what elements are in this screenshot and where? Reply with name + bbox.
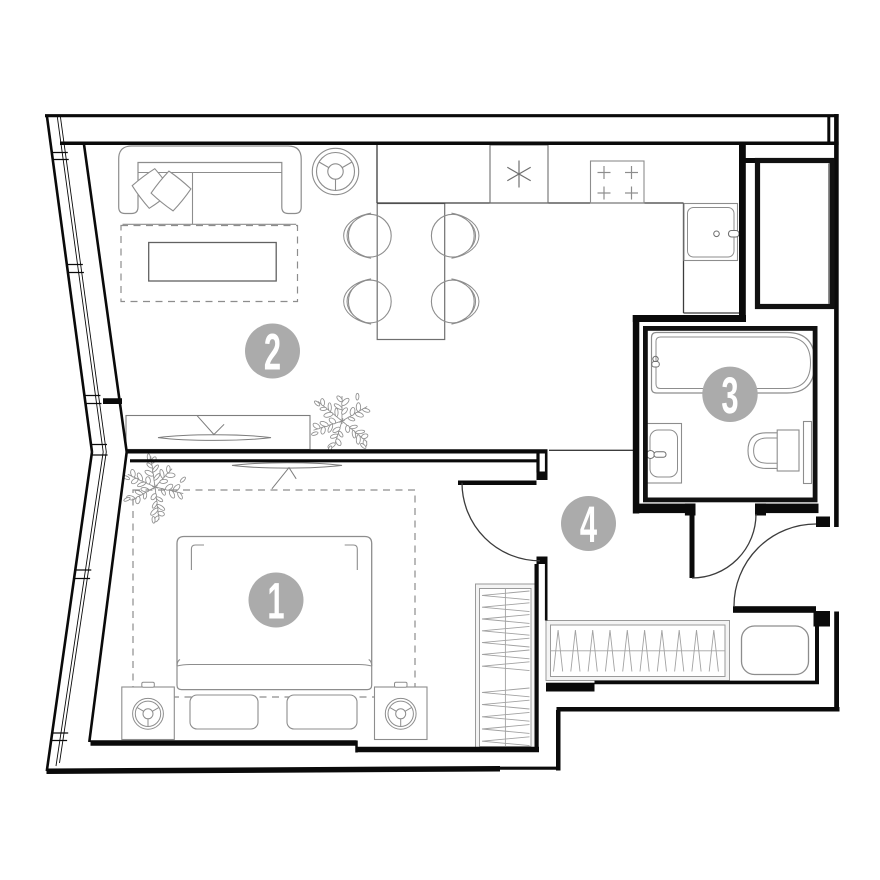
svg-text:4: 4: [580, 495, 597, 553]
svg-text:2: 2: [264, 323, 281, 381]
svg-text:3: 3: [721, 366, 738, 424]
svg-text:1: 1: [267, 572, 284, 630]
